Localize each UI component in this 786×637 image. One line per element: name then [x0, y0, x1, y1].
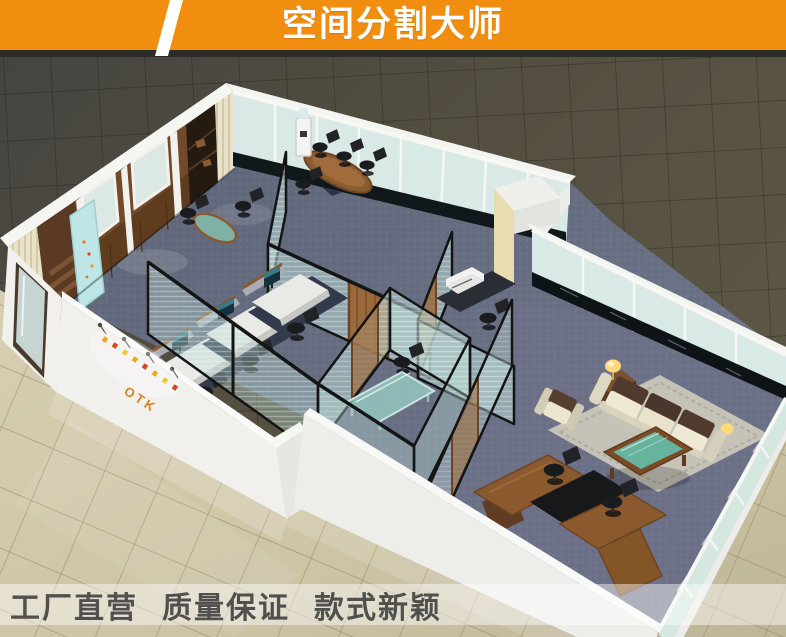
slogan-factory-direct: 工厂直营: [10, 583, 138, 627]
banner-slash-decoration: [155, 0, 184, 56]
slogan-band: 工厂直营 质量保证 款式新颖: [0, 584, 786, 625]
promo-image: OTK 空间分割大师 工厂直营 质量保证 款式新颖: [0, 0, 786, 637]
title-banner: 空间分割大师: [0, 0, 786, 50]
banner-divider: [0, 50, 786, 57]
slogan-quality-guarantee: 质量保证: [162, 583, 290, 627]
office-render: OTK: [0, 0, 786, 637]
banner-title: 空间分割大师: [282, 0, 504, 50]
slogan-new-styles: 款式新颖: [314, 583, 442, 627]
